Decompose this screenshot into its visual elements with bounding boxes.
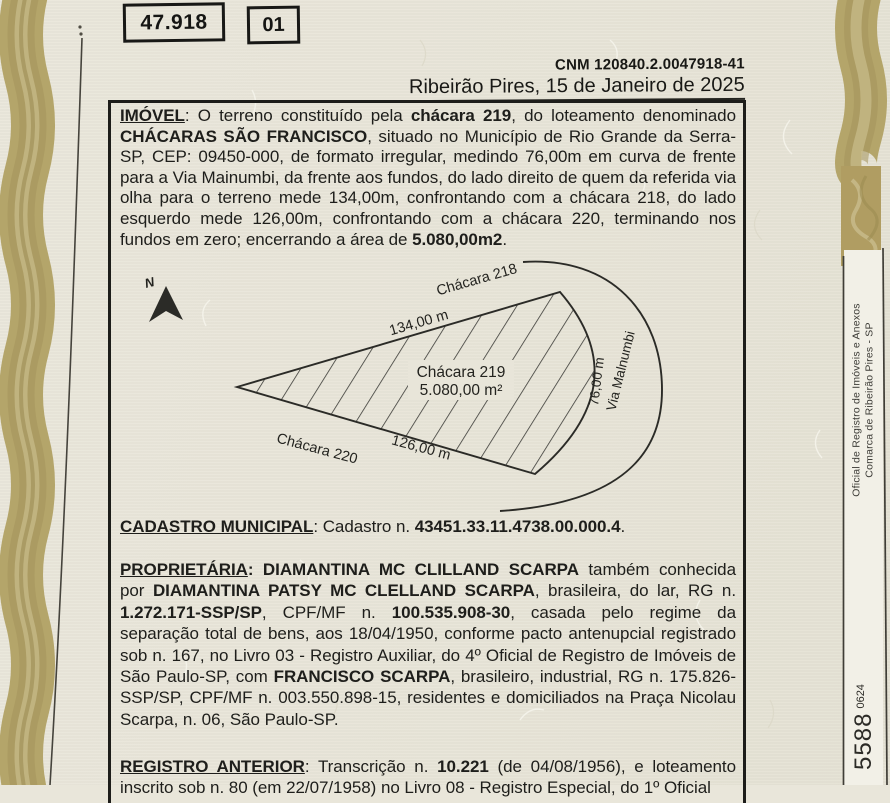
imovel-paragraph: IMÓVEL: O terreno constituído pela cháca… bbox=[120, 106, 736, 250]
matricula-number-box: 47.918 bbox=[123, 2, 226, 42]
left-decorative-border bbox=[21, 0, 33, 785]
matricula-number: 47.918 bbox=[140, 10, 208, 35]
proprietaria-paragraph: PROPRIETÁRIA: DIAMANTINA MC CLILLAND SCA… bbox=[120, 559, 736, 730]
document-frame: IMÓVEL: O terreno constituído pela cháca… bbox=[108, 100, 746, 803]
page-number-box: 01 bbox=[247, 6, 301, 45]
right-decorative-border bbox=[841, 0, 881, 266]
page-number: 01 bbox=[262, 13, 285, 36]
edge-dot bbox=[78, 25, 81, 28]
edge-dot bbox=[79, 32, 82, 35]
cadastro-paragraph: CADASTRO MUNICIPAL: Cadastro n. 43451.33… bbox=[120, 516, 736, 537]
scanned-registry-page: 47.918 01 CNM 120840.2.0047918-41 Ribeir… bbox=[0, 0, 890, 785]
stamp-block bbox=[841, 166, 881, 266]
page-edge-line bbox=[50, 38, 82, 785]
sheet-code-small: 0624 bbox=[855, 684, 867, 708]
office-line-2: Comarca de Ribeirão Pires - SP bbox=[864, 303, 877, 496]
sheet-code-large: 5588 bbox=[850, 712, 877, 769]
registry-office-vertical-label: Oficial de Registro de Imóveis e Anexos … bbox=[843, 252, 884, 547]
place-date-line: Ribeirão Pires, 15 de Janeiro de 2025 bbox=[409, 74, 745, 102]
sheet-code-vertical: 55880624 bbox=[841, 668, 886, 785]
office-line-1: Oficial de Registro de Imóveis e Anexos bbox=[851, 303, 864, 496]
cnm-code: CNM 120840.2.0047918-41 bbox=[555, 55, 745, 73]
registro-anterior-paragraph: REGISTRO ANTERIOR: Transcrição n. 10.221… bbox=[120, 756, 736, 800]
